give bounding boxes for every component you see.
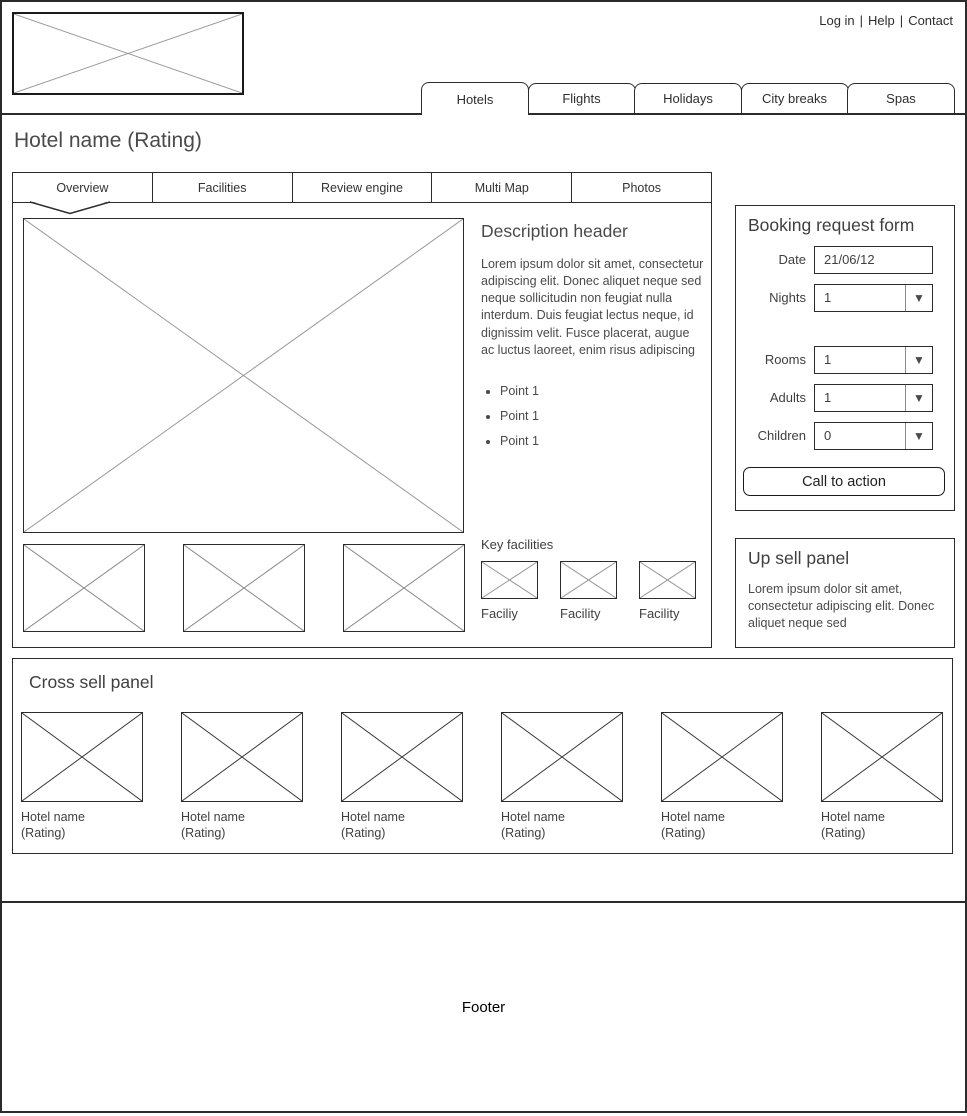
hotel-name: Hotel name: [661, 809, 783, 825]
nights-select[interactable]: 1 ▼: [814, 284, 933, 312]
hotel-rating: (Rating): [181, 825, 303, 841]
footer-label: Footer: [462, 999, 505, 1016]
hotel-name: Hotel name: [501, 809, 623, 825]
help-link[interactable]: Help: [868, 13, 895, 28]
hotel-rating: (Rating): [821, 825, 943, 841]
cross-sell-item[interactable]: Hotel name (Rating): [661, 712, 783, 842]
cross-sell-item[interactable]: Hotel name (Rating): [501, 712, 623, 842]
account-links: Log in|Help|Contact: [819, 13, 953, 28]
hero-image-placeholder: [23, 218, 464, 533]
description-header: Description header: [481, 221, 705, 242]
description-text: Lorem ipsum dolor sit amet, consectetur …: [481, 256, 705, 359]
rooms-value: 1: [824, 347, 831, 372]
key-facilities-label: Key facilities: [481, 537, 711, 552]
hotel-image-placeholder: [501, 712, 623, 802]
active-tab-pointer-icon: [30, 201, 110, 216]
hotel-name: Hotel name: [821, 809, 943, 825]
hotel-name: Hotel name: [341, 809, 463, 825]
cross-sell-panel: Cross sell panel Hotel name (Rating) Hot…: [12, 658, 953, 854]
rooms-row: Rooms 1 ▼: [736, 346, 954, 374]
hotel-rating: (Rating): [341, 825, 463, 841]
tab-flights[interactable]: Flights: [528, 83, 636, 113]
chevron-down-icon: ▼: [913, 430, 925, 442]
booking-form-title: Booking request form: [748, 215, 914, 236]
link-separator: |: [895, 13, 908, 28]
nights-label: Nights: [736, 284, 806, 312]
tab-spas[interactable]: Spas: [847, 83, 955, 113]
hotel-image-placeholder: [181, 712, 303, 802]
cross-sell-item[interactable]: Hotel name (Rating): [341, 712, 463, 842]
main-content: Hotel name (Rating) Overview Facilities …: [2, 113, 965, 903]
hotel-name: Hotel name: [181, 809, 303, 825]
children-value: 0: [824, 423, 831, 448]
hotel-image-placeholder: [661, 712, 783, 802]
gallery-thumbnail-placeholder[interactable]: [183, 544, 305, 632]
cross-sell-item[interactable]: Hotel name (Rating): [181, 712, 303, 842]
upsell-title: Up sell panel: [748, 548, 849, 569]
hotel-rating: (Rating): [501, 825, 623, 841]
upsell-text: Lorem ipsum dolor sit amet, consectetur …: [748, 581, 942, 632]
facility-label: Faciliy: [481, 606, 538, 621]
facility-item: Facility: [639, 561, 696, 621]
subtab-photos[interactable]: Photos: [571, 173, 711, 202]
description-column: Description header Lorem ipsum dolor sit…: [481, 221, 705, 459]
hotel-rating: (Rating): [661, 825, 783, 841]
date-row: Date 21/06/12: [736, 246, 954, 274]
subtab-review-engine[interactable]: Review engine: [292, 173, 432, 202]
upsell-panel: Up sell panel Lorem ipsum dolor sit amet…: [735, 538, 955, 648]
nights-value: 1: [824, 285, 831, 310]
date-input[interactable]: 21/06/12: [814, 246, 933, 274]
gallery-thumbnail-placeholder[interactable]: [23, 544, 145, 632]
cross-sell-title: Cross sell panel: [29, 672, 154, 693]
booking-request-form: Booking request form Date 21/06/12 Night…: [735, 205, 955, 511]
rooms-select[interactable]: 1 ▼: [814, 346, 933, 374]
adults-label: Adults: [736, 384, 806, 412]
bullet-list: Point 1 Point 1 Point 1: [481, 384, 705, 448]
overview-panel: Description header Lorem ipsum dolor sit…: [12, 203, 712, 648]
adults-select[interactable]: 1 ▼: [814, 384, 933, 412]
date-value: 21/06/12: [824, 247, 875, 272]
gallery-thumbnail-placeholder[interactable]: [343, 544, 465, 632]
adults-row: Adults 1 ▼: [736, 384, 954, 412]
site-header: Log in|Help|Contact Hotels Flights Holid…: [2, 2, 965, 113]
bullet-item: Point 1: [500, 434, 705, 448]
facility-icon-placeholder: [481, 561, 538, 599]
hotel-image-placeholder: [821, 712, 943, 802]
site-footer: Footer: [2, 903, 965, 1111]
link-separator: |: [855, 13, 868, 28]
call-to-action-button[interactable]: Call to action: [743, 467, 945, 496]
chevron-down-icon: ▼: [913, 392, 925, 404]
tab-holidays[interactable]: Holidays: [634, 83, 742, 113]
children-label: Children: [736, 422, 806, 450]
hotel-rating: (Rating): [21, 825, 143, 841]
key-facilities: Key facilities Faciliy Facility: [481, 537, 711, 621]
page-title: Hotel name (Rating): [14, 129, 202, 153]
chevron-down-icon: ▼: [913, 354, 925, 366]
hotel-name: Hotel name: [21, 809, 143, 825]
subtab-multi-map[interactable]: Multi Map: [431, 173, 571, 202]
dropdown-arrow-button[interactable]: ▼: [905, 385, 932, 411]
cross-sell-item[interactable]: Hotel name (Rating): [821, 712, 943, 842]
logo-placeholder-image[interactable]: [12, 12, 244, 95]
date-label: Date: [736, 246, 806, 274]
adults-value: 1: [824, 385, 831, 410]
subtab-facilities[interactable]: Facilities: [152, 173, 292, 202]
bullet-item: Point 1: [500, 384, 705, 398]
contact-link[interactable]: Contact: [908, 13, 953, 28]
primary-nav-tabs: Hotels Flights Holidays City breaks Spas: [423, 82, 956, 113]
rooms-label: Rooms: [736, 346, 806, 374]
children-row: Children 0 ▼: [736, 422, 954, 450]
dropdown-arrow-button[interactable]: ▼: [905, 285, 932, 311]
facility-row: Faciliy Facility Facility: [481, 561, 711, 621]
tab-city-breaks[interactable]: City breaks: [741, 83, 849, 113]
login-link[interactable]: Log in: [819, 13, 854, 28]
dropdown-arrow-button[interactable]: ▼: [905, 347, 932, 373]
nights-row: Nights 1 ▼: [736, 284, 954, 312]
bullet-item: Point 1: [500, 409, 705, 423]
dropdown-arrow-button[interactable]: ▼: [905, 423, 932, 449]
cross-sell-item[interactable]: Hotel name (Rating): [21, 712, 143, 842]
facility-item: Faciliy: [481, 561, 538, 621]
hotel-image-placeholder: [21, 712, 143, 802]
page: Log in|Help|Contact Hotels Flights Holid…: [0, 0, 967, 1113]
facility-item: Facility: [560, 561, 617, 621]
tab-hotels[interactable]: Hotels: [421, 82, 529, 115]
chevron-down-icon: ▼: [913, 292, 925, 304]
facility-icon-placeholder: [560, 561, 617, 599]
facility-icon-placeholder: [639, 561, 696, 599]
hotel-section-tabs: Overview Facilities Review engine Multi …: [12, 172, 712, 203]
facility-label: Facility: [560, 606, 617, 621]
hotel-image-placeholder: [341, 712, 463, 802]
facility-label: Facility: [639, 606, 696, 621]
children-select[interactable]: 0 ▼: [814, 422, 933, 450]
subtab-overview[interactable]: Overview: [13, 173, 152, 202]
